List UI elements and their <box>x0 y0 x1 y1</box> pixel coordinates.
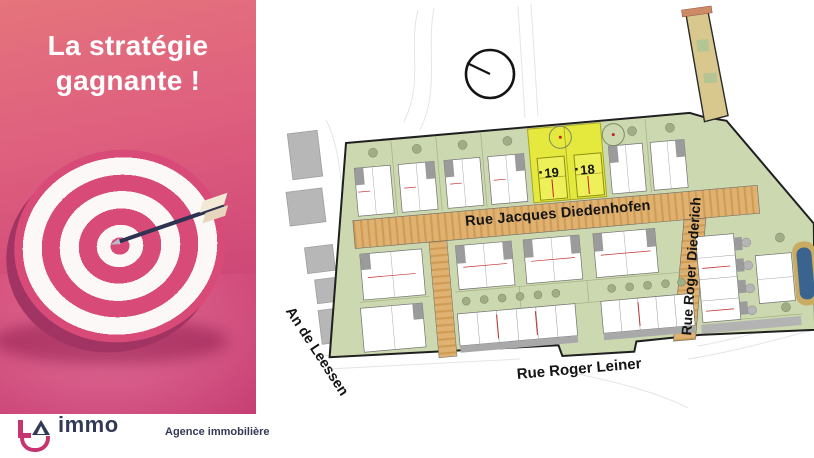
plot-number-19: 19 <box>544 165 560 181</box>
marketing-slide: La stratégie gagnante ! immo Agence immo… <box>0 0 814 458</box>
logo-letter-a-inner <box>37 426 45 434</box>
headline-line2: gagnante ! <box>56 65 201 96</box>
promo-panel: La stratégie gagnante ! <box>0 0 256 414</box>
brand-name: immo <box>58 412 119 438</box>
brand-tagline: Agence immobilière <box>165 426 270 438</box>
development-area: 19 18 Rue Jacques Diedenhofen Rue Roger … <box>268 0 814 403</box>
logo-smile <box>20 436 50 452</box>
street-label-south: Rue Roger Leiner <box>516 355 642 383</box>
plot18-marker <box>575 168 578 171</box>
north-access-strip <box>681 5 728 123</box>
north-indicator-icon <box>466 50 514 98</box>
plot-number-18: 18 <box>580 161 596 177</box>
site-plan: 19 18 Rue Jacques Diedenhofen Rue Roger … <box>268 0 814 458</box>
headline-line1: La stratégie <box>48 30 209 61</box>
highlighted-plot <box>527 123 606 203</box>
headline: La stratégie gagnante ! <box>0 28 256 98</box>
plot19-marker <box>539 171 542 174</box>
brand-logo-icon <box>18 420 56 454</box>
